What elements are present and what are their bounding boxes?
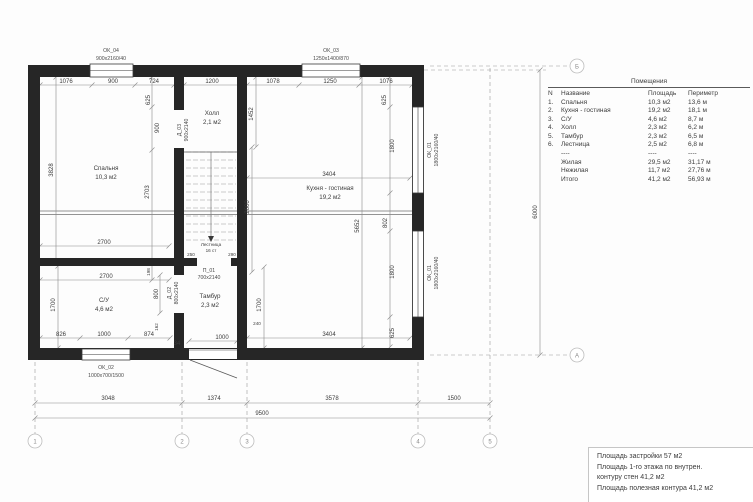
dim-label-site: 3578 bbox=[325, 396, 339, 402]
dim-label: 34 bbox=[174, 341, 181, 347]
summary-area: 11,7 м2 bbox=[648, 167, 688, 176]
dim-label: 1250 bbox=[323, 79, 337, 85]
summary-row: Жилая 29,5 м2 31,17 м bbox=[548, 159, 750, 168]
row-n: 3. bbox=[548, 116, 561, 125]
door-label: П_01 bbox=[203, 268, 215, 274]
dim-label: 240 bbox=[253, 321, 261, 326]
stairs bbox=[184, 152, 237, 242]
summary-name: Нежилая bbox=[561, 167, 648, 176]
window-size: 1800х2160/40 bbox=[434, 133, 440, 166]
dim-label: 162 bbox=[154, 323, 159, 331]
row-area: 10,3 м2 bbox=[648, 99, 688, 108]
window-ok03 bbox=[302, 64, 360, 77]
dim-label: 290 bbox=[228, 252, 236, 257]
dim-label: 625 bbox=[390, 327, 396, 338]
rooms-table-header: N Название Площадь Периметр bbox=[548, 90, 750, 99]
window-label: ОК_02 bbox=[98, 365, 114, 371]
row-n: 1. bbox=[548, 99, 561, 108]
room-name-bedroom: Спальня bbox=[94, 165, 119, 172]
row-area: 2,3 м2 bbox=[648, 133, 688, 142]
summary-perim: 56,93 м bbox=[688, 176, 750, 185]
door-label: Д_02 bbox=[167, 287, 173, 299]
window-label: ОК_03 bbox=[323, 48, 339, 54]
door-size: 800х2140 bbox=[174, 281, 180, 304]
axis-markers: 1 2 3 4 5 Б А bbox=[28, 59, 584, 448]
row-name: Спальня bbox=[561, 99, 648, 108]
window-ok04 bbox=[90, 64, 133, 77]
row-perim: 6,2 м bbox=[688, 124, 750, 133]
info-line: Площадь застройки 57 м2 bbox=[597, 452, 753, 463]
window-label: ОК_04 bbox=[103, 48, 119, 54]
room-area-bedroom: 10,3 м2 bbox=[95, 174, 117, 181]
dim-label: 1452 bbox=[249, 107, 255, 121]
window-label: ОК_01 bbox=[427, 142, 433, 158]
row-n: 4. bbox=[548, 124, 561, 133]
dim-label: 1200 bbox=[205, 79, 219, 85]
table-row: 6. Лестница 2,5 м2 6,8 м bbox=[548, 141, 750, 150]
axis-a: А bbox=[575, 354, 579, 360]
dim-label: 5652 bbox=[355, 219, 361, 233]
dim-label: 724 bbox=[149, 79, 160, 85]
dim-label: 826 bbox=[56, 332, 67, 338]
dim-label: 874 bbox=[144, 332, 155, 338]
row-perim: 6,8 м bbox=[688, 141, 750, 150]
row-area: 2,5 м2 bbox=[648, 141, 688, 150]
dim-line-kitchen-v bbox=[360, 75, 365, 351]
dim-label: 198 bbox=[146, 268, 151, 276]
floor-plan-drawing: ОК_04 900х2160/40 ОК_03 1250х1400/870 ОК… bbox=[0, 0, 753, 502]
stairs-label: Лестница bbox=[201, 242, 222, 247]
info-line: Площадь полезная контура 41,2 м2 bbox=[597, 484, 753, 495]
entrance-door-leaf bbox=[190, 360, 237, 378]
window-size: 1250х1400/870 bbox=[313, 56, 349, 62]
dim-label: 1700 bbox=[51, 298, 57, 312]
walls bbox=[28, 65, 424, 360]
col-area: Площадь bbox=[648, 90, 688, 99]
table-row: 4. Холл 2,3 м2 6,2 м bbox=[548, 124, 750, 133]
dim-label: 1800 bbox=[390, 265, 396, 279]
row-name: Холл bbox=[561, 124, 648, 133]
rooms-table: Помещения N Название Площадь Периметр 1.… bbox=[548, 78, 750, 184]
dim-label: 1700 bbox=[257, 298, 263, 312]
row-perim: 13,6 м bbox=[688, 99, 750, 108]
table-separator-row: ---- ---- ---- bbox=[548, 150, 750, 159]
dim-label: 1076 bbox=[59, 79, 73, 85]
room-name-wc: С/У bbox=[99, 297, 109, 304]
window-size: 900х2160/40 bbox=[96, 56, 126, 62]
table-row: 1. Спальня 10,3 м2 13,6 м bbox=[548, 99, 750, 108]
table-row: 5. Тамбур 2,3 м2 6,5 м bbox=[548, 133, 750, 142]
summary-name: Жилая bbox=[561, 159, 648, 168]
info-line: контуру стен 41,2 м2 bbox=[597, 473, 753, 484]
dim-label: 1000 bbox=[215, 335, 229, 341]
row-area: 4,6 м2 bbox=[648, 116, 688, 125]
row-perim: 6,5 м bbox=[688, 133, 750, 142]
dim-label: 3404 bbox=[322, 172, 336, 178]
row-name: Кухня - гостиная bbox=[561, 107, 648, 116]
row-n: 5. bbox=[548, 133, 561, 142]
dim-label: 2700 bbox=[99, 274, 113, 280]
room-area-tambour: 2,3 м2 bbox=[201, 302, 220, 309]
axis-b: Б bbox=[575, 65, 579, 71]
room-area-hall: 2,1 м2 bbox=[203, 119, 222, 126]
dim-label: 800 bbox=[154, 288, 160, 299]
stairs-note: 16 ст bbox=[206, 248, 218, 253]
window-ok02 bbox=[82, 349, 130, 360]
dim-label: 1800 bbox=[390, 139, 396, 153]
info-line: Площадь 1-го этажа по внутрен. bbox=[597, 463, 753, 474]
dim-label: 900 bbox=[108, 79, 119, 85]
dim-label: 1076 bbox=[379, 79, 393, 85]
dim-label: 2703 bbox=[145, 185, 151, 199]
window-label: ОК_01 bbox=[427, 265, 433, 281]
row-area: 19,2 м2 bbox=[648, 107, 688, 116]
dim-label-site: 3048 bbox=[101, 396, 115, 402]
dim-label-height: 6000 bbox=[533, 205, 539, 219]
dim-label: 625 bbox=[382, 94, 388, 105]
row-name: Тамбур bbox=[561, 133, 648, 142]
room-area-wc: 4,6 м2 bbox=[95, 306, 114, 313]
row-n: 6. bbox=[548, 141, 561, 150]
room-name-kitchen: Кухня - гостиная bbox=[306, 185, 353, 192]
summary-area: 41,2 м2 bbox=[648, 176, 688, 185]
floor-plan-sheet: ОК_04 900х2160/40 ОК_03 1250х1400/870 ОК… bbox=[0, 0, 753, 502]
row-name: С/У bbox=[561, 116, 648, 125]
dash: ---- bbox=[648, 150, 688, 159]
row-n: 2. bbox=[548, 107, 561, 116]
window-ok01-lower bbox=[413, 231, 424, 317]
col-name: Название bbox=[561, 90, 648, 99]
dash: ---- bbox=[688, 150, 750, 159]
dim-label: 250 bbox=[187, 252, 195, 257]
dim-line-top bbox=[38, 83, 415, 88]
window-ok01-upper bbox=[413, 107, 424, 193]
dim-line-tambour bbox=[187, 339, 240, 344]
table-row: 2. Кухня - гостиная 19,2 м2 18,1 м bbox=[548, 107, 750, 116]
door-size: 700х2140 bbox=[198, 275, 221, 281]
dim-line-right-v bbox=[388, 75, 393, 350]
col-n: N bbox=[548, 90, 561, 99]
dash: ---- bbox=[561, 150, 648, 159]
room-name-hall: Холл bbox=[205, 110, 220, 117]
dim-label: 2700 bbox=[97, 240, 111, 246]
dim-label-site: 1500 bbox=[447, 396, 461, 402]
room-area-kitchen: 19,2 м2 bbox=[319, 194, 341, 201]
summary-perim: 31,17 м bbox=[688, 159, 750, 168]
area-summary-box: Площадь застройки 57 м2 Площадь 1-го эта… bbox=[588, 447, 753, 502]
dim-label: 3404 bbox=[322, 332, 336, 338]
floor-beam-lines bbox=[40, 211, 412, 215]
dim-label-site: 1374 bbox=[207, 396, 221, 402]
summary-row: Нежилая 11,7 м2 27,76 м bbox=[548, 167, 750, 176]
door-size: 900х2140 bbox=[184, 118, 190, 141]
dim-label: 900 bbox=[155, 122, 161, 133]
entrance-opening bbox=[189, 349, 237, 378]
row-area: 2,3 м2 bbox=[648, 124, 688, 133]
dim-label: 1000 bbox=[97, 332, 111, 338]
row-perim: 8,7 м bbox=[688, 116, 750, 125]
window-size: 1800х2160/40 bbox=[434, 256, 440, 289]
summary-name: Итого bbox=[561, 176, 648, 185]
dim-label: 1078 bbox=[266, 79, 280, 85]
table-row: 3. С/У 4,6 м2 8,7 м bbox=[548, 116, 750, 125]
dim-label: 802 bbox=[383, 217, 389, 228]
dim-label: 625 bbox=[146, 94, 152, 105]
rooms-table-title: Помещения bbox=[548, 78, 750, 88]
summary-row: Итого 41,2 м2 56,93 м bbox=[548, 176, 750, 185]
room-name-tambour: Тамбур bbox=[200, 293, 222, 300]
window-size: 1000х700/1500 bbox=[88, 373, 124, 379]
door-label: Д_03 bbox=[177, 124, 183, 136]
dim-label: 3828 bbox=[49, 163, 55, 177]
row-perim: 18,1 м bbox=[688, 107, 750, 116]
dim-label: 2600 bbox=[245, 200, 251, 214]
col-perim: Периметр bbox=[688, 90, 750, 99]
row-name: Лестница bbox=[561, 141, 648, 150]
summary-perim: 27,76 м bbox=[688, 167, 750, 176]
dim-label-site-total: 9500 bbox=[255, 411, 269, 417]
summary-area: 29,5 м2 bbox=[648, 159, 688, 168]
